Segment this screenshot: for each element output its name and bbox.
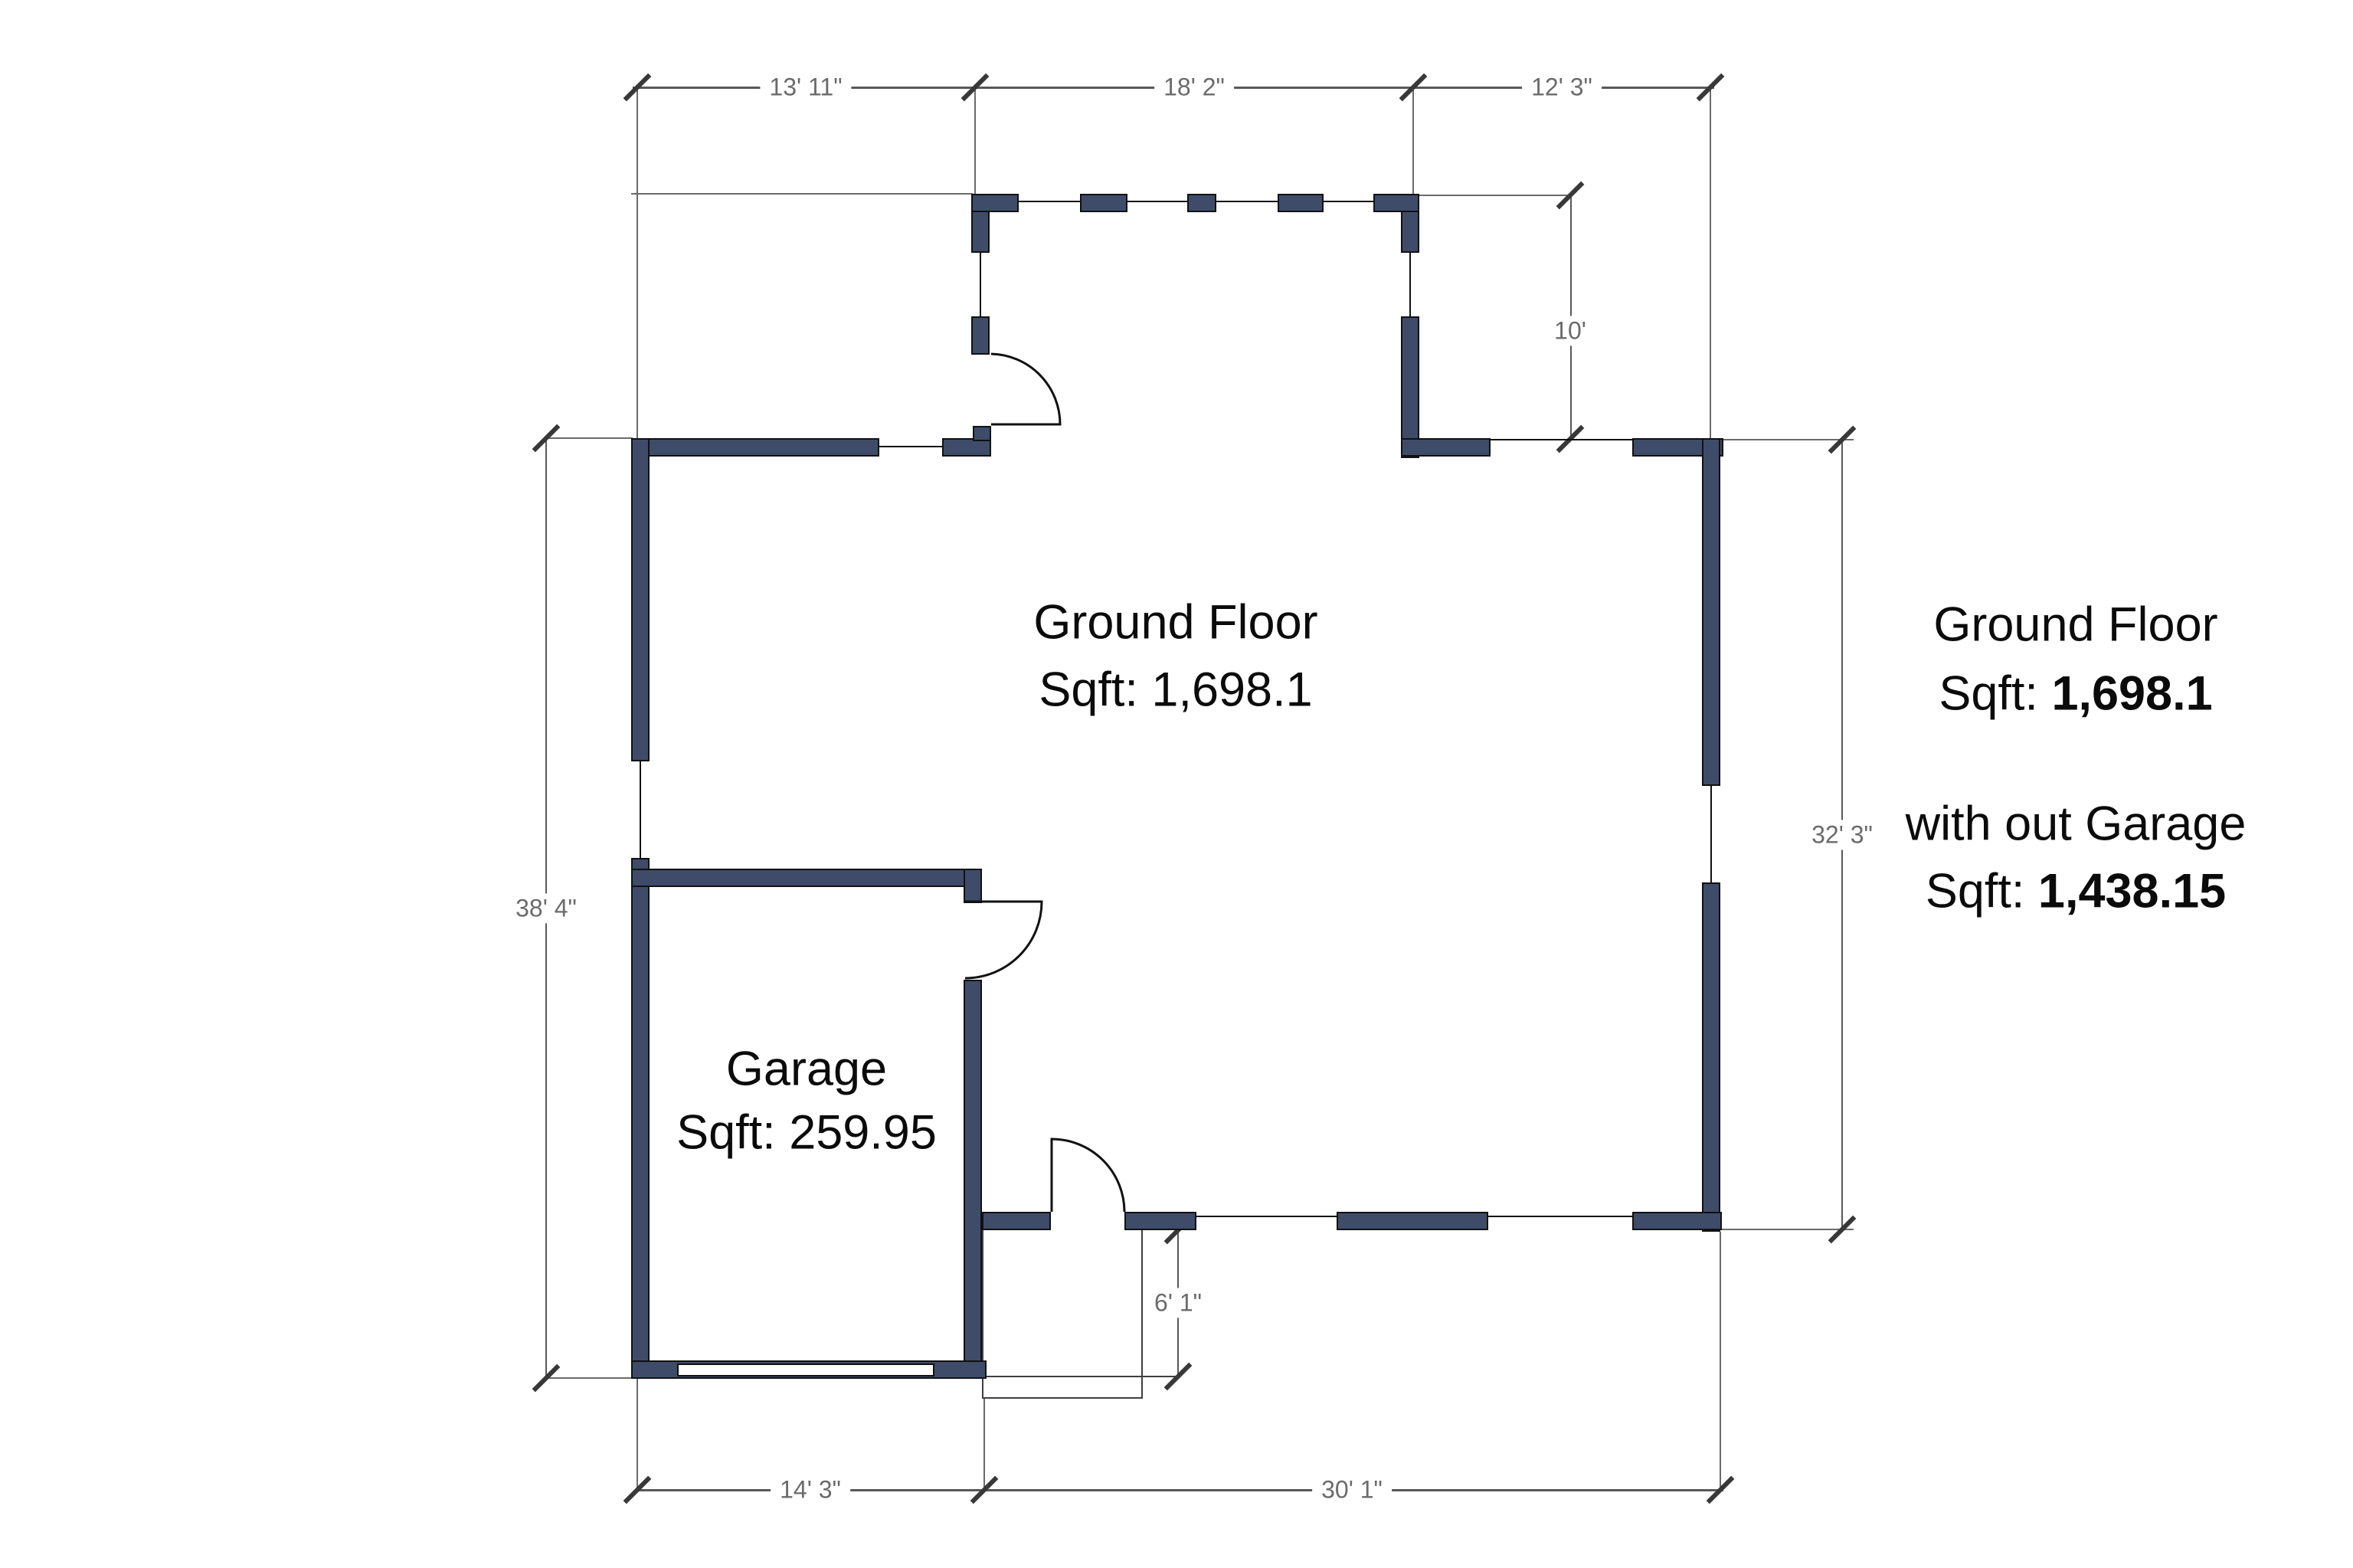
- rear-door-swing-icon: [1052, 1139, 1124, 1212]
- dim-label-top-2: 18' 2": [1154, 72, 1234, 102]
- dim-label-right-height: 32' 3": [1802, 820, 1882, 849]
- summary-subtitle: with out Garage: [1906, 800, 2247, 849]
- summary-sqft-value: 1,698.1: [2051, 667, 2212, 721]
- dim-label-recess-depth: 10': [1545, 316, 1595, 345]
- ground-floor-sqft: Sqft: 1,698.1: [1039, 666, 1312, 715]
- floor-plan-canvas: 13' 11" 18' 2" 12' 3" 10' 38' 4" 32' 3" …: [0, 0, 2353, 1568]
- summary-sqft: Sqft: 1,698.1: [1939, 670, 2212, 719]
- ground-floor-name: Ground Floor: [1033, 599, 1317, 647]
- dim-label-bottom-1: 14' 3": [771, 1475, 850, 1504]
- dim-label-porch-depth: 6' 1": [1145, 1288, 1211, 1318]
- summary-title: Ground Floor: [1933, 601, 2217, 650]
- summary-sqft2-value: 1,438.15: [2038, 865, 2226, 918]
- summary-sqft-prefix: Sqft:: [1939, 667, 2051, 721]
- summary-sqft2-prefix: Sqft:: [1926, 865, 2038, 918]
- door-swings-layer: [0, 0, 2353, 1568]
- summary-sqft2: Sqft: 1,438.15: [1926, 868, 2226, 916]
- dim-label-left-height: 38' 4": [506, 893, 586, 923]
- entry-door-swing-icon: [991, 354, 1060, 424]
- garage-name: Garage: [726, 1046, 887, 1094]
- dim-label-top-3: 12' 3": [1522, 72, 1602, 102]
- garage-sqft: Sqft: 259.95: [676, 1109, 937, 1157]
- dim-label-bottom-2: 30' 1": [1312, 1475, 1392, 1504]
- dim-label-top-1: 13' 11": [760, 72, 851, 102]
- garage-entry-door-swing-icon: [965, 902, 1042, 978]
